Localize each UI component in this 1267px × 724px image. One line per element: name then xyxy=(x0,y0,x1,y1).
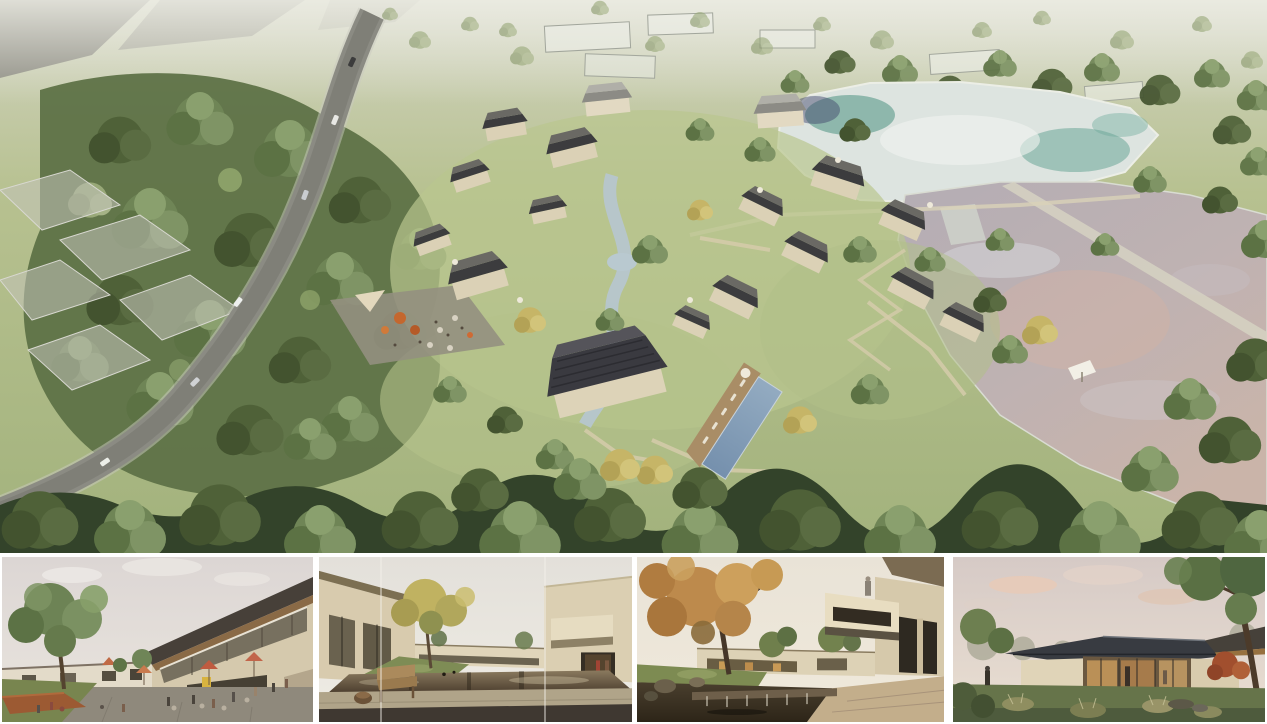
right-buildings xyxy=(544,577,632,682)
thumbnail-pavilion-view xyxy=(953,557,1265,722)
courtyard-pond-art xyxy=(319,557,632,722)
bush xyxy=(971,694,995,718)
aerial-masterplan-panel xyxy=(0,0,1267,553)
thumbnail-courtyard-pond-view xyxy=(319,557,632,722)
grass-tuft xyxy=(1002,697,1034,711)
rock xyxy=(654,679,676,693)
pavilion-view-art xyxy=(953,557,1265,722)
rendering-collage xyxy=(0,0,1267,724)
interior-figure xyxy=(1125,666,1130,686)
thumbnail-water-court-view xyxy=(637,557,944,722)
thumbnail-plaza-view xyxy=(2,557,313,722)
water-court-art xyxy=(637,557,944,722)
aerial-masterplan-art xyxy=(0,0,1267,553)
grass-tuft xyxy=(1070,702,1106,718)
figure-brown-coat xyxy=(605,660,609,671)
rock xyxy=(1168,699,1194,709)
rock xyxy=(1192,704,1208,712)
rock xyxy=(644,691,658,701)
plaza-view-art xyxy=(2,557,313,722)
balcony-figure xyxy=(865,581,871,596)
rock xyxy=(689,677,705,687)
interior-figure xyxy=(1163,670,1167,684)
person xyxy=(985,670,990,685)
